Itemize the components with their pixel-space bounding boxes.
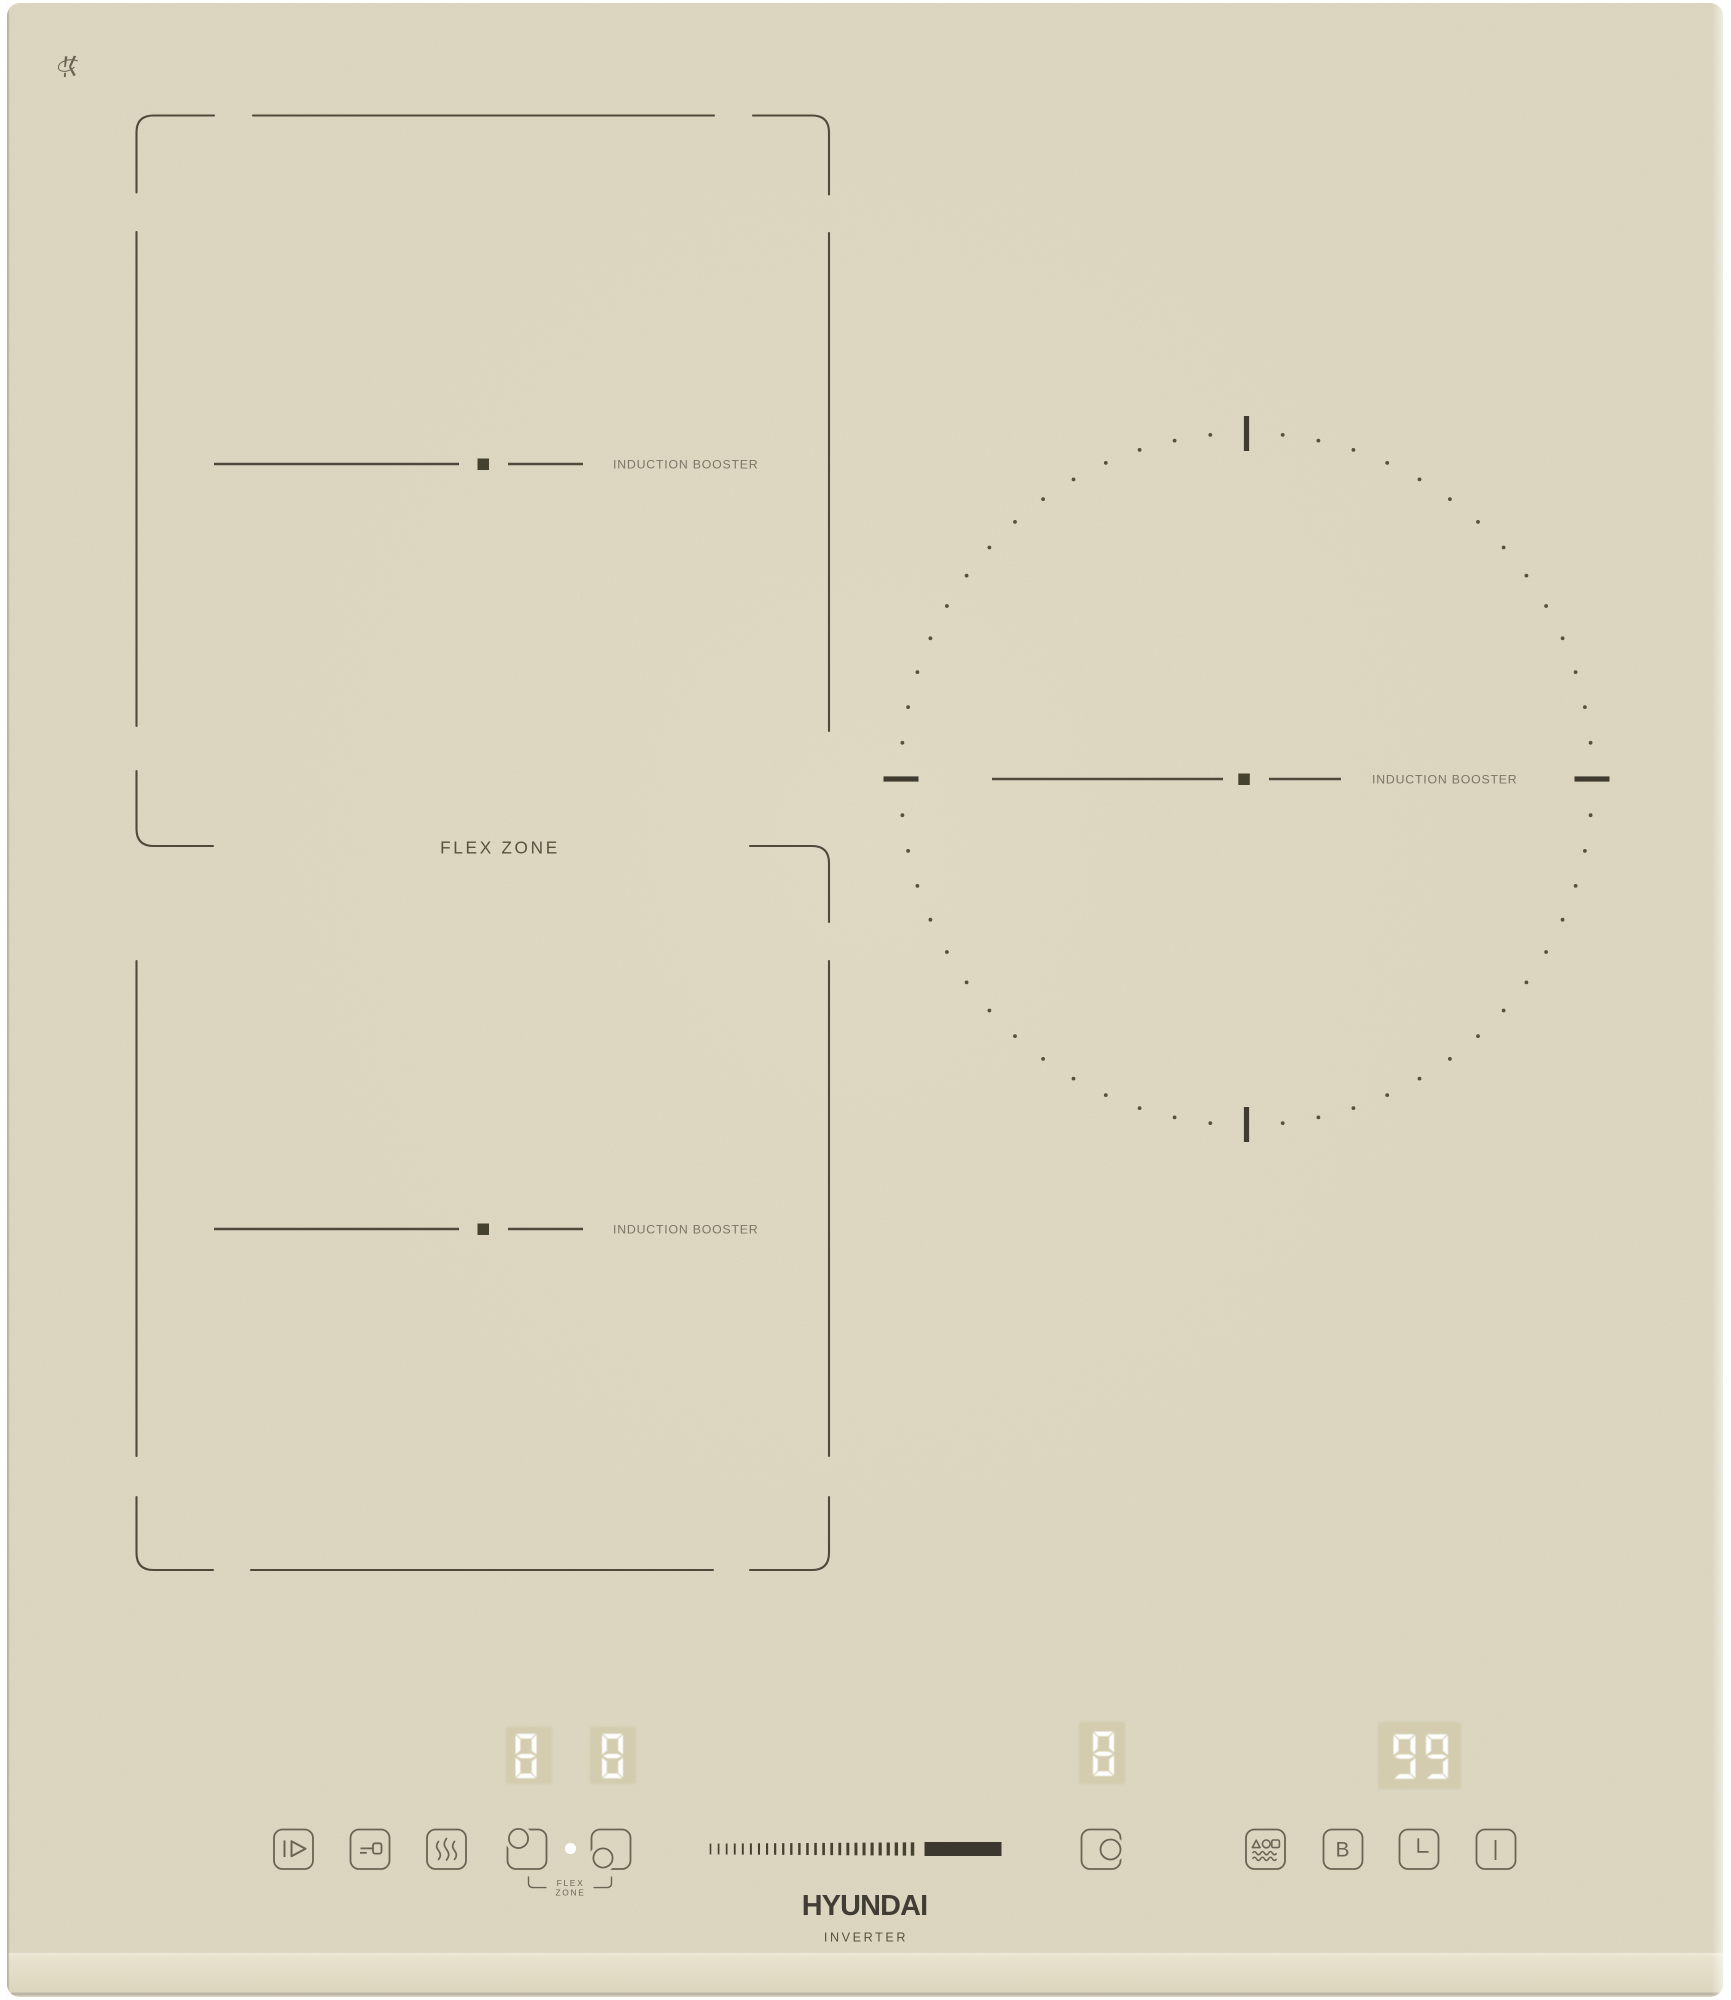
svg-text:ZONE: ZONE [555,1887,585,1897]
svg-text:HYUNDAI: HYUNDAI [802,1890,928,1922]
svg-text:B: B [1335,1839,1349,1862]
svg-text:INDUCTION BOOSTER: INDUCTION BOOSTER [1372,772,1517,786]
svg-text:INVERTER: INVERTER [824,1931,908,1945]
svg-text:INDUCTION BOOSTER: INDUCTION BOOSTER [613,457,758,471]
svg-text:INDUCTION BOOSTER: INDUCTION BOOSTER [613,1222,758,1236]
svg-text:FLEX ZONE: FLEX ZONE [440,838,560,858]
svg-text:FLEX: FLEX [557,1878,585,1888]
